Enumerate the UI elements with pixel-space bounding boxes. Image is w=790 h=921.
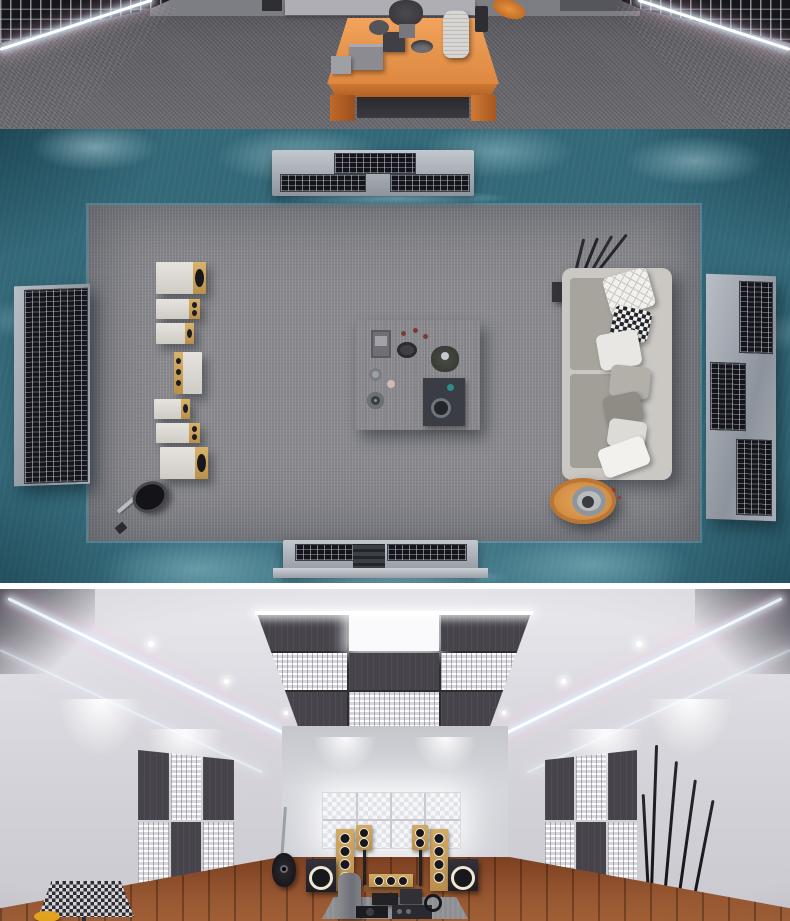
bowl-contents [582,496,594,508]
dark-tray [423,378,465,426]
coffee-table-plan [355,320,480,430]
flower [441,352,449,360]
guitar [116,480,166,536]
diffuser-panel-left [14,284,90,487]
console-grille [334,153,416,174]
plate [369,368,382,381]
table-leg-left [330,95,355,121]
teapot [369,20,389,35]
gray-box-large [349,44,383,70]
woven-vase [443,10,469,58]
round-speaker [431,398,451,418]
console-step [353,544,385,570]
speaker [156,262,206,294]
vignette [0,589,790,921]
red-decor [612,488,616,492]
diffuser-grid [710,362,746,431]
sofa [562,268,672,480]
dark-bottle [475,6,488,32]
speaker [156,323,194,344]
far-device [262,0,282,11]
speaker [154,399,190,419]
screenshot-root [0,0,790,921]
panel-plan-view [0,129,790,583]
bowl [411,40,433,53]
plant-pot [399,24,415,38]
media-console-bottom [283,540,478,576]
diffuser-grid [739,281,773,354]
speaker [156,299,200,319]
table-leg-right [471,95,496,121]
plate-small [387,380,395,388]
console-grille [390,174,470,192]
panel-front-room [0,0,790,129]
console-grille [387,544,467,561]
guitar-headstock [115,522,128,535]
media-console-top [272,150,474,196]
small-vase [447,384,454,391]
cup [401,331,406,336]
plant [389,0,423,26]
round-side-table [550,478,616,524]
coffee-table [327,0,499,129]
console-base [273,568,488,578]
diffuser-grid [24,288,88,484]
panel-bright-room [0,589,790,921]
cup [413,328,418,333]
diffuser-grid [736,439,772,516]
device [371,330,391,358]
speaker [174,352,202,394]
diffuser-panel-right [706,274,776,521]
speaker [160,447,208,479]
speaker [156,423,200,443]
red-decor [618,496,621,499]
gray-box-small [331,56,351,74]
teapot-plan [397,342,417,358]
cup [423,334,428,339]
bowl-on-table [572,486,606,516]
speaker-column [150,262,216,482]
console-grille [280,174,366,192]
plate-ring [367,392,384,409]
